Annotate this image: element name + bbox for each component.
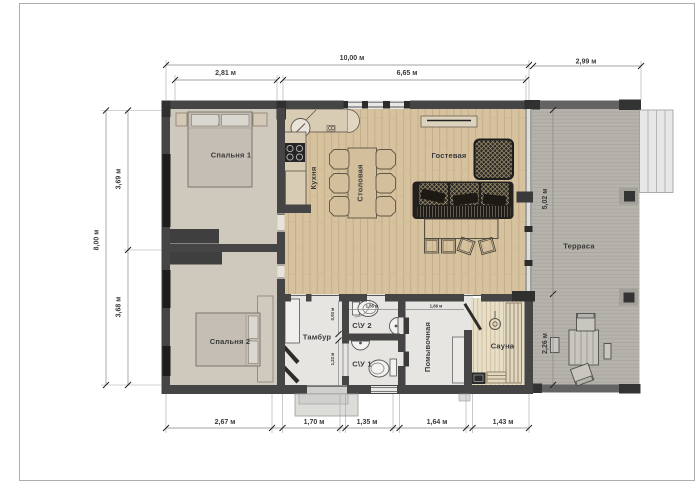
svg-text:1,35 м: 1,35 м [366, 304, 379, 309]
svg-text:1,35 м: 1,35 м [357, 419, 378, 426]
svg-text:Сауна: Сауна [491, 342, 515, 351]
svg-text:Спальня 2: Спальня 2 [210, 337, 250, 346]
svg-text:6,65 м: 6,65 м [397, 70, 418, 77]
svg-text:3,68 м: 3,68 м [116, 297, 123, 318]
svg-text:Спальня 1: Спальня 1 [211, 151, 251, 160]
svg-text:2,67 м: 2,67 м [215, 419, 236, 426]
svg-text:1,43 м: 1,43 м [493, 419, 514, 426]
svg-text:Столовая: Столовая [356, 164, 365, 201]
svg-text:Кухня: Кухня [309, 167, 318, 190]
svg-text:Терраса: Терраса [563, 242, 595, 251]
svg-text:1,23 м: 1,23 м [330, 353, 335, 366]
svg-text:2,81 м: 2,81 м [215, 70, 236, 77]
svg-text:Тамбур: Тамбур [303, 333, 332, 342]
svg-text:8,00 м: 8,00 м [94, 230, 101, 251]
svg-text:Гостевая: Гостевая [431, 151, 466, 160]
svg-text:5,02 м: 5,02 м [542, 189, 549, 210]
svg-text:С\У 2: С\У 2 [352, 321, 371, 330]
svg-text:3,69 м: 3,69 м [116, 169, 123, 190]
svg-text:Помывочная: Помывочная [423, 322, 432, 372]
svg-text:2,26 м: 2,26 м [542, 333, 549, 354]
svg-text:1,70 м: 1,70 м [304, 419, 325, 426]
svg-text:1,64 м: 1,64 м [427, 419, 448, 426]
svg-text:1,66 м: 1,66 м [430, 304, 443, 309]
svg-text:0,93 м: 0,93 м [330, 308, 335, 321]
svg-text:10,00 м: 10,00 м [340, 55, 365, 62]
svg-text:С\У 1: С\У 1 [352, 360, 371, 369]
svg-text:2,99 м: 2,99 м [576, 59, 597, 66]
